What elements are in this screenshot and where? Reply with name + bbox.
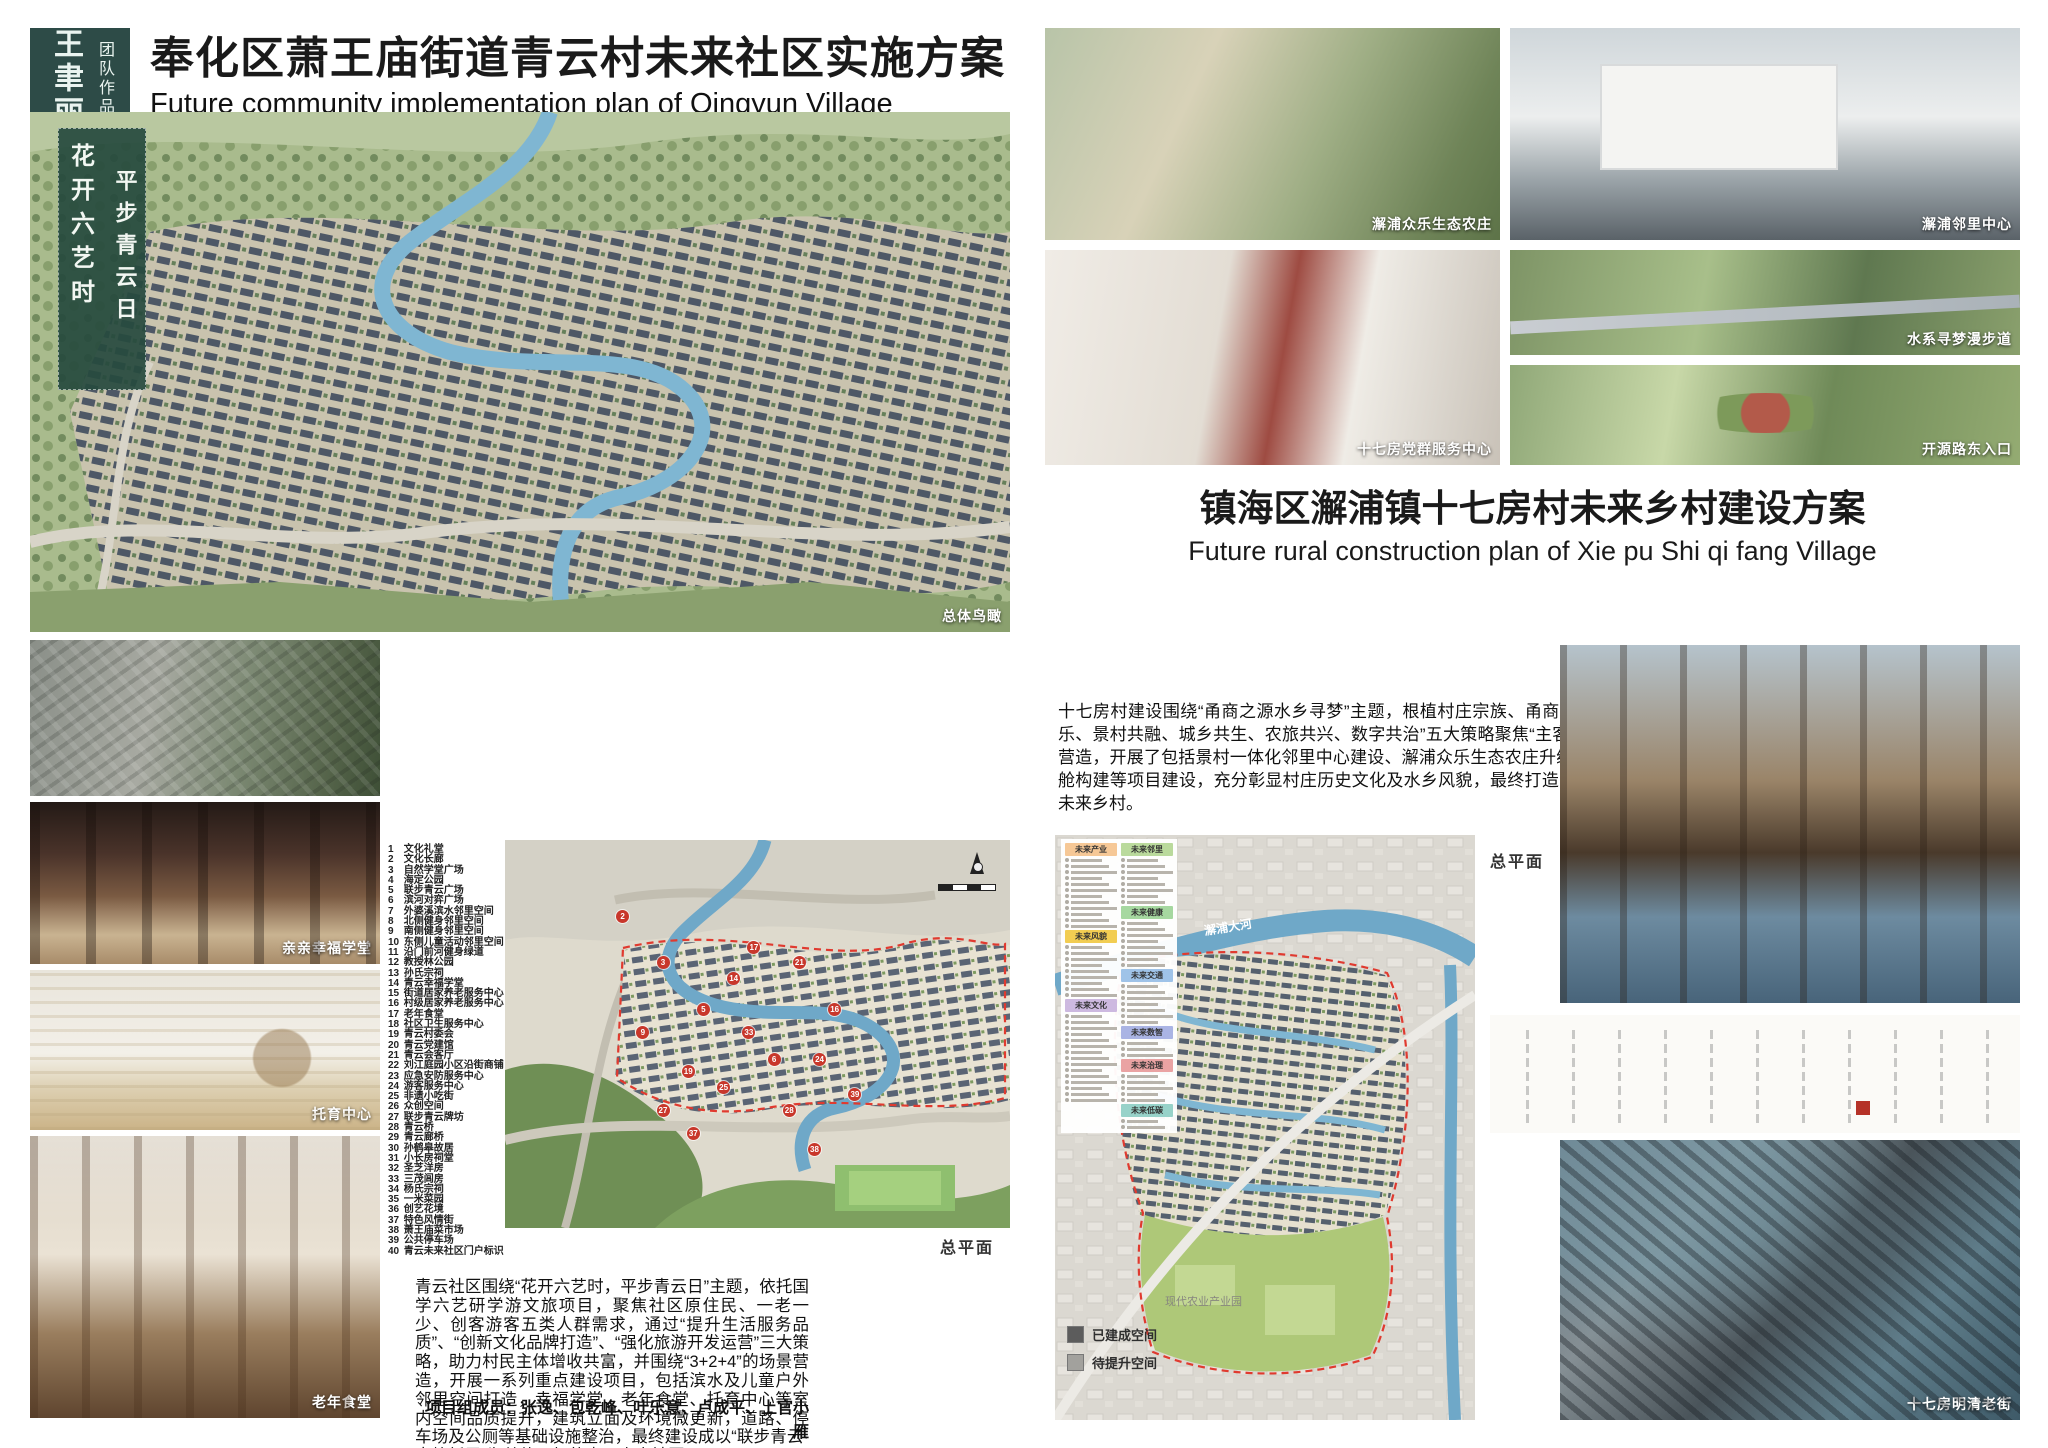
legend-item-row	[1121, 1002, 1173, 1006]
legend-column-2: 未来邻里未来健康未来交通未来数智未来治理未来低碳	[1121, 843, 1173, 1129]
map-marker: 16	[828, 1003, 841, 1016]
legend-item-row	[1121, 1074, 1173, 1078]
status-legend: 已建成空间待提升空间	[1067, 1316, 1157, 1372]
old-street-aerial-photo: 十七房明清老街	[1560, 1140, 2020, 1420]
legend-item-row	[1121, 1008, 1173, 1012]
photo-caption: 澥浦众乐生态农庄	[1372, 214, 1492, 234]
legend-item-row	[1065, 1038, 1117, 1042]
legend-item-row	[1065, 957, 1117, 961]
map-marker: 25	[717, 1081, 730, 1094]
eco-farm-photo: 澥浦众乐生态农庄	[1045, 28, 1500, 240]
north-arrow-icon	[970, 852, 984, 874]
render-caption: 总体鸟瞰	[942, 606, 1002, 626]
qingyun-master-plan-map: 2356914161719212425272833373839	[505, 840, 1010, 1228]
right-page-subtitle: Future rural construction plan of Xie pu…	[1045, 536, 2020, 567]
photo-caption: 亲亲幸福学堂	[282, 938, 372, 958]
legend-item-row	[1121, 963, 1173, 967]
neighborhood-center-photo: 澥浦邻里中心	[1510, 28, 2020, 240]
street-aerial-photo	[30, 640, 380, 796]
legend-section-header: 未来治理	[1121, 1059, 1173, 1072]
legend-item-row	[1121, 1047, 1173, 1051]
legend-item: 40 青云未来社区门户标识	[388, 1247, 508, 1257]
waterside-walk-photo: 水系寻梦漫步道	[1510, 250, 2020, 355]
photo-caption: 十七房明清老街	[1907, 1394, 2012, 1414]
legend-item-row	[1121, 1098, 1173, 1102]
map-marker: 2	[616, 910, 629, 923]
legend-item-row	[1065, 1062, 1117, 1066]
legend-item-row	[1121, 870, 1173, 874]
legend-item-row	[1065, 864, 1117, 868]
east-entrance-photo: 开源路东入口	[1510, 365, 2020, 465]
legend-item-row	[1065, 906, 1117, 910]
legend-section-header: 未来邻里	[1121, 843, 1173, 856]
legend-item-row	[1065, 1014, 1117, 1018]
status-legend-row: 待提升空间	[1067, 1353, 1157, 1372]
photo-caption: 澥浦邻里中心	[1922, 214, 2012, 234]
legend-item-row	[1065, 1098, 1117, 1102]
photo-caption: 十七房党群服务中心	[1357, 439, 1492, 459]
map-marker: 37	[687, 1127, 700, 1140]
legend-item-row	[1065, 1056, 1117, 1060]
right-page-title: 镇海区澥浦镇十七房村未来乡村建设方案	[1045, 478, 2020, 532]
map-marker: 24	[813, 1053, 826, 1066]
legend-item-row	[1121, 888, 1173, 892]
legend-item-row	[1065, 1026, 1117, 1030]
legend-item-row	[1065, 1032, 1117, 1036]
legend-section-header: 未来交通	[1121, 969, 1173, 982]
legend-item-row	[1121, 858, 1173, 862]
legend-item-row	[1065, 912, 1117, 916]
map-markers-layer: 2356914161719212425272833373839	[505, 840, 1010, 1228]
legend-item: 22 刘江庭园小区沿街商铺	[388, 1061, 508, 1071]
map-marker: 17	[747, 941, 760, 954]
qingyun-members: 项目组成员：张逸、包乾峰、叶乐意、卢成平、上官小雁	[415, 1394, 809, 1442]
legend-item-row	[1121, 1041, 1173, 1045]
legend-item-row	[1121, 900, 1173, 904]
legend-column-1: 未来产业未来风貌未来文化	[1065, 843, 1117, 1129]
legend-item-row	[1065, 1020, 1117, 1024]
handwriting-strokes	[1500, 1025, 2010, 1123]
legend-item-row	[1065, 1050, 1117, 1054]
legend-item-row	[1121, 876, 1173, 880]
map-marker: 9	[636, 1026, 649, 1039]
legend-item-row	[1121, 1125, 1173, 1129]
legend-item-row	[1065, 1068, 1117, 1072]
legend-item-row	[1121, 933, 1173, 937]
legend-item-row	[1065, 882, 1117, 886]
map-marker: 19	[682, 1065, 695, 1078]
happiness-school-photo: 亲亲幸福学堂	[30, 802, 380, 964]
photo-caption: 托育中心	[312, 1104, 372, 1124]
red-seal	[1856, 1101, 1870, 1115]
calligraphy-line-1: 花开六艺时	[64, 143, 99, 375]
calligraphy-line-2: 平步青云日	[109, 169, 141, 375]
legend-section-header: 未来文化	[1065, 999, 1117, 1012]
photo-caption: 水系寻梦漫步道	[1907, 329, 2012, 349]
legend-item-row	[1065, 894, 1117, 898]
legend-item-row	[1121, 990, 1173, 994]
map-marker: 3	[657, 956, 670, 969]
qingyun-aerial-render: 花开六艺时 平步青云日 总体鸟瞰	[30, 112, 1010, 632]
legend-item-row	[1065, 963, 1117, 967]
legend-item-row	[1065, 975, 1117, 979]
legend-item-row	[1065, 1074, 1117, 1078]
map-marker: 28	[783, 1104, 796, 1117]
legend-item-row	[1065, 870, 1117, 874]
legend-item-row	[1065, 876, 1117, 880]
legend-item-row	[1065, 1086, 1117, 1090]
presentation-board: 王聿丽 团队作品 奉化区萧王庙街道青云村未来社区实施方案 Future comm…	[0, 0, 2048, 1448]
status-legend-row: 已建成空间	[1067, 1325, 1157, 1344]
legend-item-row	[1065, 951, 1117, 955]
legend-item-row	[1065, 987, 1117, 991]
legend-item-row	[1065, 981, 1117, 985]
photo-caption: 开源路东入口	[1922, 439, 2012, 459]
legend-item-row	[1065, 969, 1117, 973]
xiepu-master-plan-map: 澥浦大河 现代农业产业园 未来产业未来风貌未来文化 未来邻里未来健康未来交通未来…	[1055, 835, 1475, 1420]
left-map-caption: 总平面	[940, 1234, 994, 1258]
legend-item-row	[1121, 957, 1173, 961]
legend-item-row	[1121, 1092, 1173, 1096]
legend-item-row	[1065, 1092, 1117, 1096]
legend-item-row	[1121, 927, 1173, 931]
legend-section-header: 未来低碳	[1121, 1104, 1173, 1117]
legend-item-row	[1065, 945, 1117, 949]
legend-item: 32 圣芝洋房	[388, 1164, 508, 1174]
legend-item-row	[1121, 1119, 1173, 1123]
right-map-caption: 总平面	[1490, 848, 1544, 872]
map-marker: 21	[793, 956, 806, 969]
industry-park-label: 现代农业产业园	[1165, 1294, 1242, 1308]
legend-item-row	[1065, 900, 1117, 904]
map-marker: 39	[848, 1088, 861, 1101]
legend-item-row	[1065, 888, 1117, 892]
photo-caption: 老年食堂	[312, 1392, 372, 1412]
legend-item-row	[1121, 984, 1173, 988]
aerial-render-art	[30, 112, 1010, 632]
map-marker: 5	[697, 1003, 710, 1016]
legend-item-row	[1121, 864, 1173, 868]
legend-item-row	[1065, 918, 1117, 922]
legend-item-row	[1121, 1053, 1173, 1057]
legend-item-row	[1121, 1014, 1173, 1018]
map-marker: 33	[742, 1026, 755, 1039]
xiepu-legend-panel: 未来产业未来风貌未来文化 未来邻里未来健康未来交通未来数智未来治理未来低碳	[1061, 839, 1177, 1133]
elderly-canteen-photo: 老年食堂	[30, 1136, 380, 1418]
legend-item-row	[1065, 993, 1117, 997]
scale-bar	[938, 884, 996, 891]
legend-item-row	[1065, 924, 1117, 928]
legend-item-row	[1121, 894, 1173, 898]
map-marker: 38	[808, 1143, 821, 1156]
legend-section-header: 未来风貌	[1065, 930, 1117, 943]
legend-item-row	[1065, 858, 1117, 862]
legend-item-row	[1065, 1044, 1117, 1048]
calligraphy-panel: 花开六艺时 平步青云日	[58, 128, 146, 390]
water-pavilion-photo	[1560, 645, 2020, 1003]
legend-item-row	[1065, 1080, 1117, 1084]
daycare-photo: 托育中心	[30, 970, 380, 1130]
legend-item-row	[1121, 951, 1173, 955]
legend-item-row	[1121, 1020, 1173, 1024]
legend-item-row	[1121, 921, 1173, 925]
legend-item-row	[1121, 1080, 1173, 1084]
legend-section-header: 未来健康	[1121, 906, 1173, 919]
legend-item-row	[1121, 882, 1173, 886]
left-title-block: 奉化区萧王庙街道青云村未来社区实施方案 Future community imp…	[150, 22, 1005, 121]
legend-item-row	[1121, 945, 1173, 949]
qingyun-legend-list: 1 文化礼堂2 文化长廊3 自然学堂广场4 海定公园5 联步青云广场6 滨河对弈…	[388, 845, 508, 1257]
map-marker: 27	[657, 1104, 670, 1117]
legend-item-row	[1121, 1086, 1173, 1090]
legend-section-header: 未来产业	[1065, 843, 1117, 856]
map-marker: 6	[768, 1053, 781, 1066]
legend-section-header: 未来数智	[1121, 1026, 1173, 1039]
logo-subtitle: 团队作品	[93, 41, 117, 117]
calligraphy-art	[1490, 1015, 2020, 1133]
party-service-center-photo: 十七房党群服务中心	[1045, 250, 1500, 465]
map-marker: 14	[727, 972, 740, 985]
left-page-title: 奉化区萧王庙街道青云村未来社区实施方案	[150, 22, 1005, 86]
legend-item-row	[1121, 939, 1173, 943]
legend-item-row	[1121, 996, 1173, 1000]
right-title-block: 镇海区澥浦镇十七房村未来乡村建设方案 Future rural construc…	[1045, 478, 2020, 567]
